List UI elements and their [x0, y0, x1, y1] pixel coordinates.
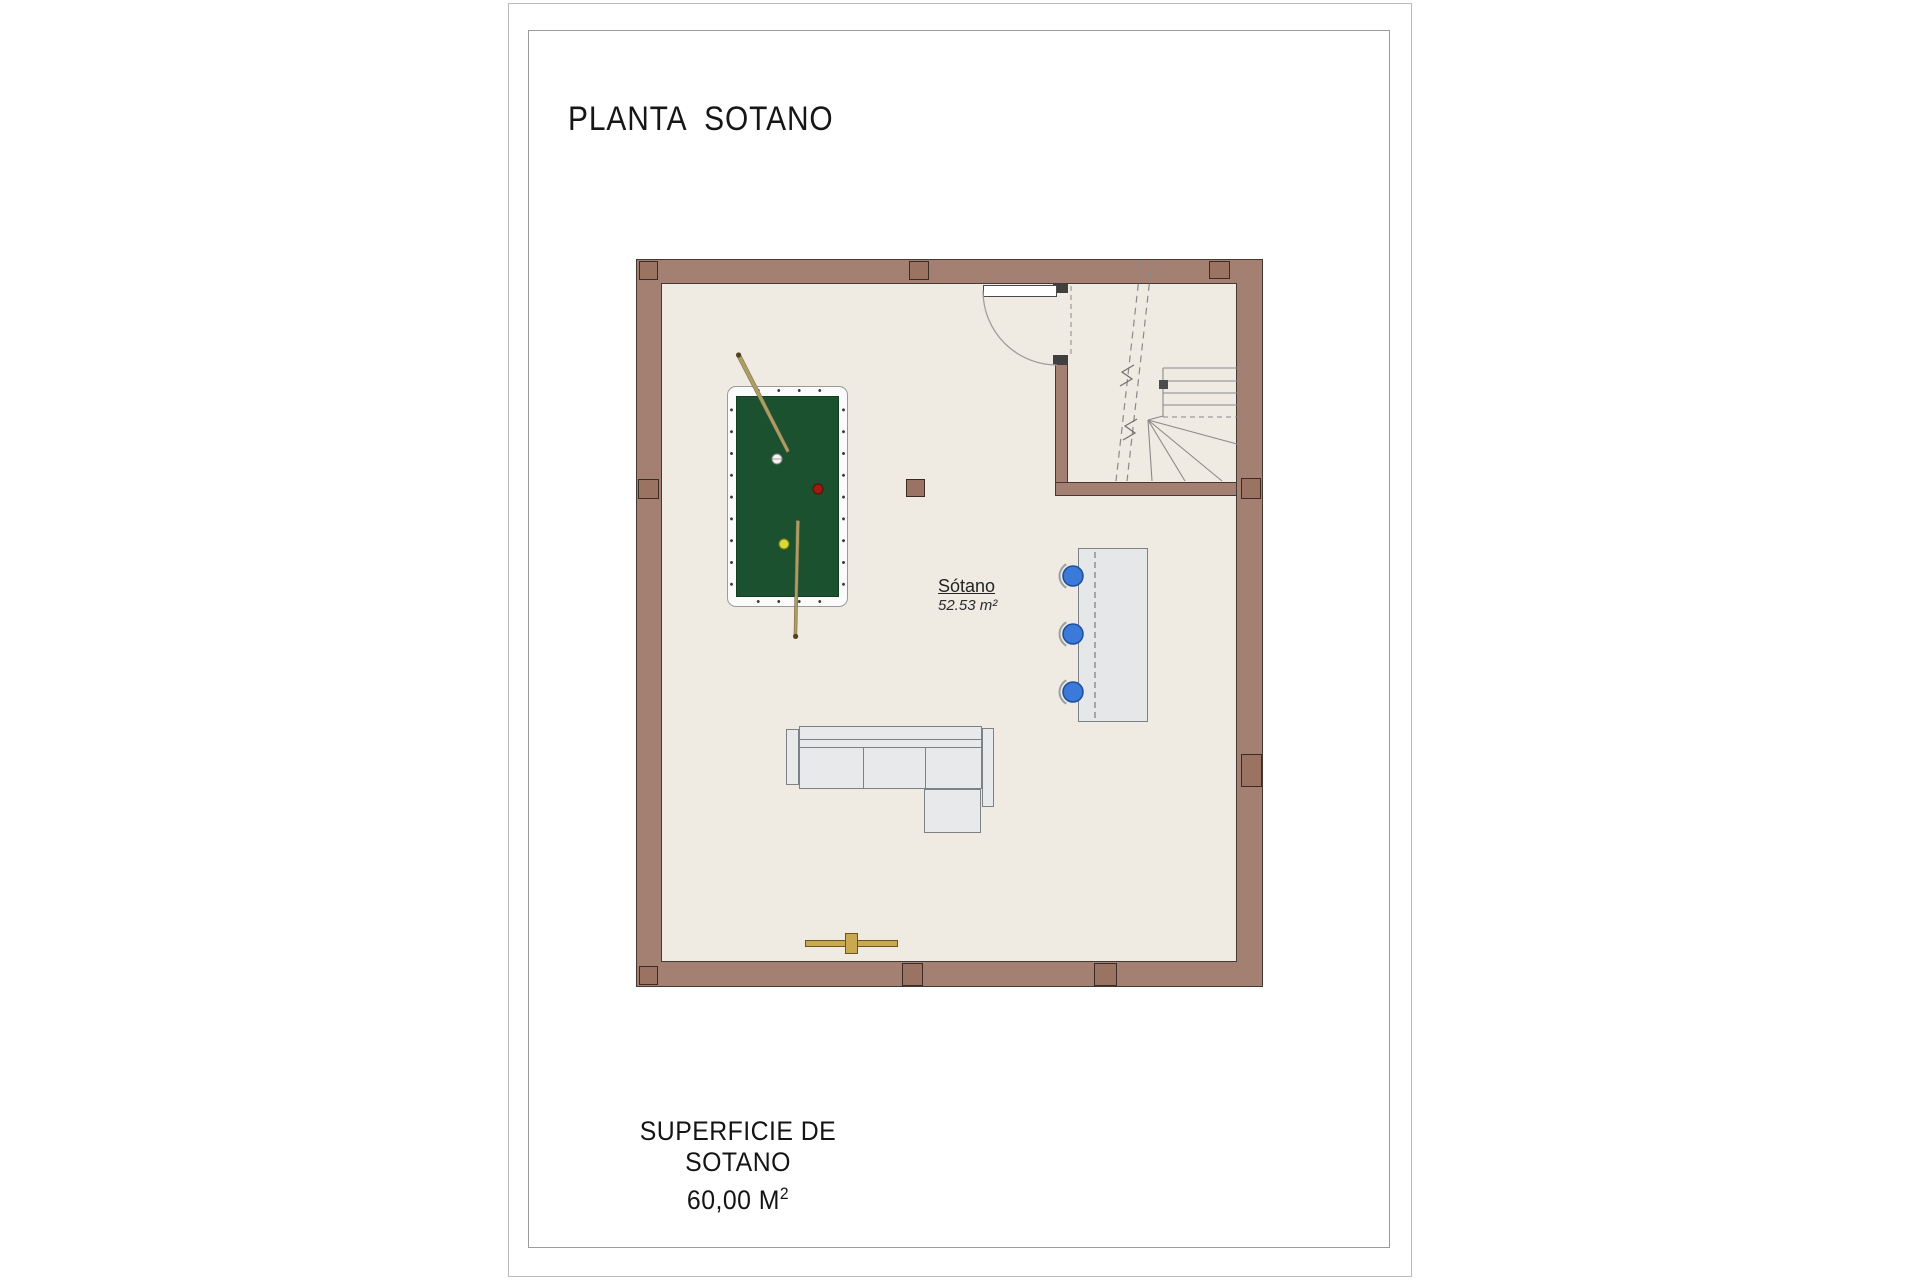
rail-markers-top	[748, 388, 830, 393]
door-leaf	[983, 285, 1057, 297]
wall-pier	[1241, 754, 1262, 787]
footer-line1: SUPERFICIE DE SOTANO	[600, 1116, 876, 1178]
sofa-backrest-line	[800, 739, 981, 740]
cue-rack-mount	[845, 933, 858, 954]
sofa-chaise	[924, 789, 981, 833]
room-name: Sótano	[938, 576, 997, 596]
page-title: PLANTA SOTANO	[568, 100, 834, 139]
room-label: Sótano 52.53 m²	[938, 576, 997, 616]
rail-markers-right	[841, 399, 846, 596]
wall-pier	[638, 479, 659, 499]
pool-table-felt	[736, 396, 839, 597]
wall-pier	[902, 963, 923, 986]
sofa-armrest-right	[982, 728, 994, 807]
stair-wall-vertical	[1055, 363, 1068, 495]
rail-markers-bottom	[748, 599, 830, 604]
wall-pier	[909, 261, 929, 280]
wall-pier	[1209, 261, 1230, 279]
wall-pier	[639, 261, 658, 280]
wall-pier	[1094, 963, 1117, 986]
door-jamb	[1053, 355, 1068, 365]
footer-area-label: SUPERFICIE DE SOTANO 60,00 M2	[600, 1116, 876, 1216]
footer-superscript: 2	[780, 1184, 789, 1203]
rail-markers-left	[729, 399, 734, 596]
stair-wall-horizontal	[1055, 482, 1237, 496]
wall-pier	[639, 966, 658, 985]
footer-line2: 60,00 M2	[600, 1178, 876, 1216]
sofa-body	[799, 726, 982, 789]
wall-pier	[1241, 478, 1261, 499]
sofa-armrest-left	[786, 729, 799, 785]
bar-counter	[1078, 548, 1148, 722]
sofa-cushion-divider	[863, 748, 864, 788]
room-floor	[661, 283, 1237, 962]
bar-counter-centerline	[1094, 552, 1096, 718]
room-area: 52.53 m²	[938, 596, 997, 616]
sofa-backrest-line	[800, 747, 981, 748]
sofa-cushion-divider	[925, 748, 926, 788]
column-pier	[906, 479, 925, 497]
floor-plan-page: PLANTA SOTANO Sótano 52.53 m²	[0, 0, 1920, 1280]
